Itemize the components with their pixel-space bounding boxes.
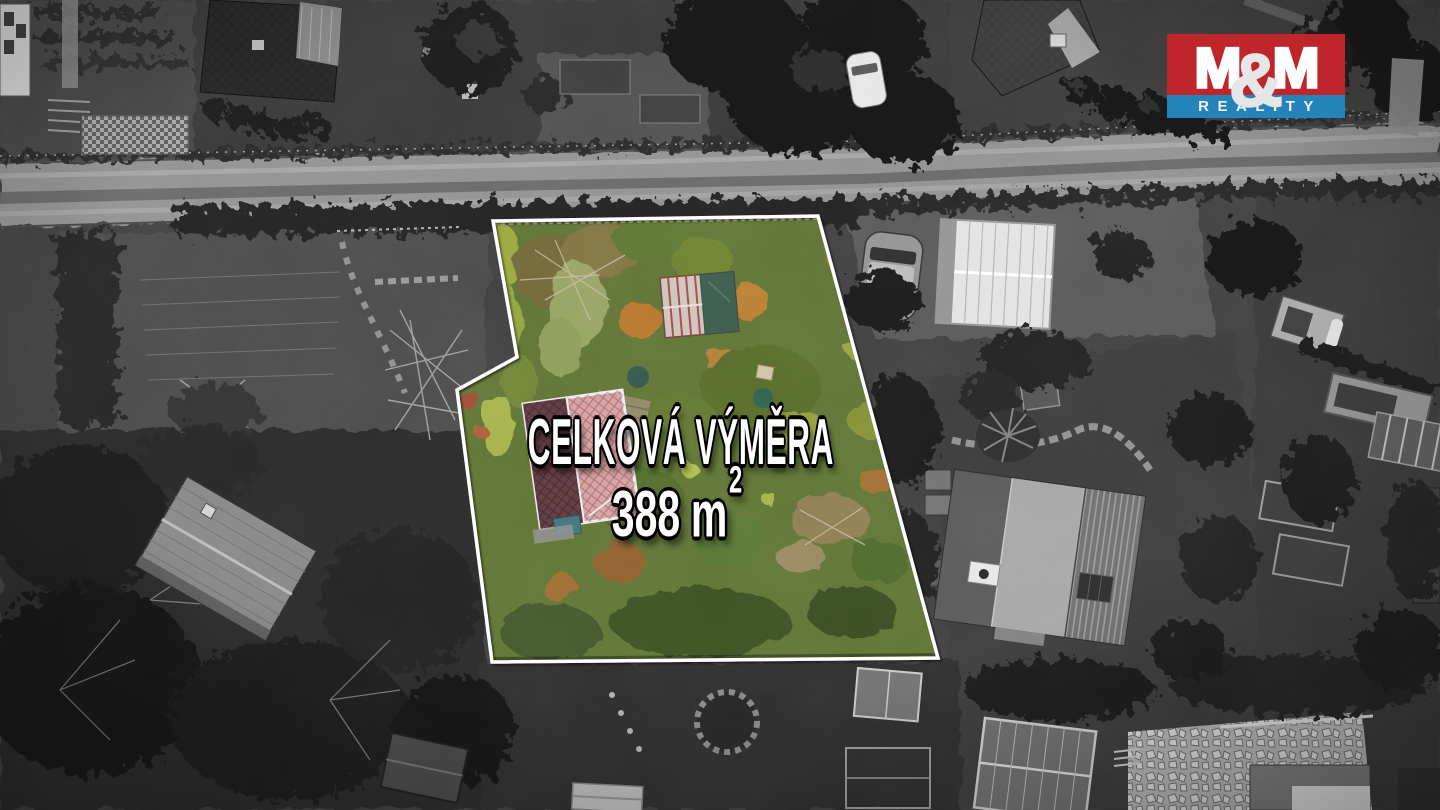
- logo-ampersand: &: [1229, 52, 1282, 110]
- mm-reality-logo: M&M REALITY: [1167, 34, 1345, 118]
- aerial-scene: [0, 0, 1440, 810]
- logo-wordmark: M&M: [1167, 34, 1345, 95]
- real-estate-aerial-photo: CELKOVÁ VÝMĚRA 388m2 M&M REALITY: [0, 0, 1440, 810]
- vignette: [0, 0, 1440, 810]
